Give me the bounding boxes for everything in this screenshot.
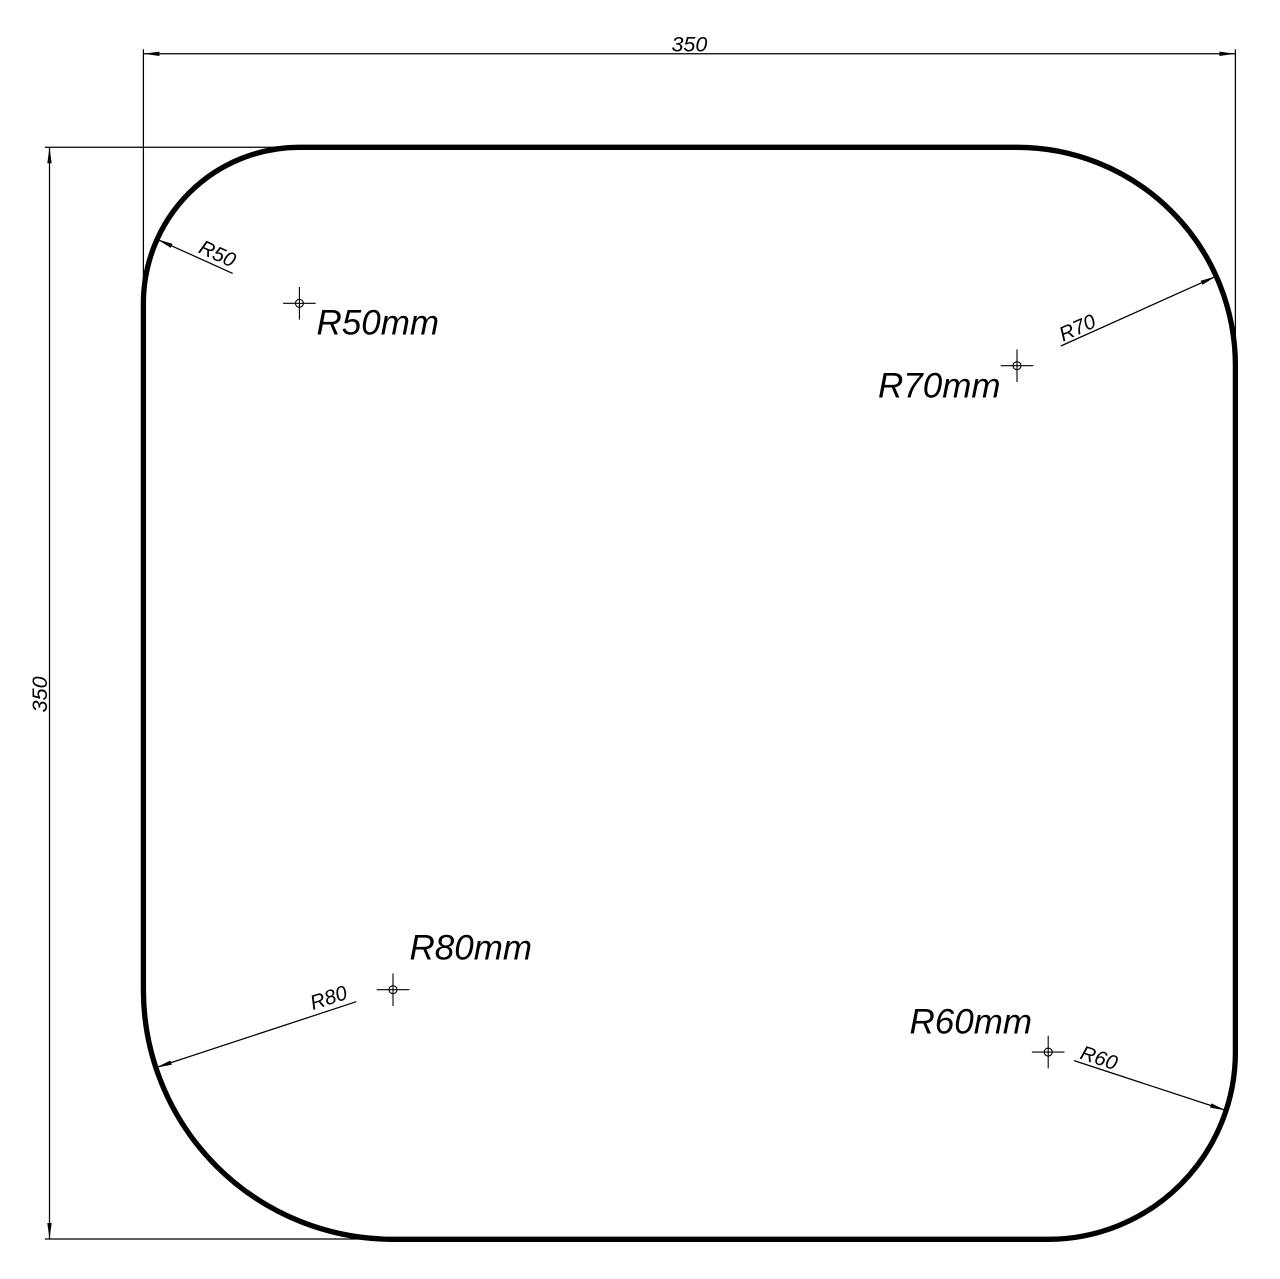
svg-text:R60mm: R60mm: [910, 1003, 1033, 1042]
svg-text:350: 350: [28, 676, 52, 712]
svg-text:R80mm: R80mm: [410, 929, 533, 968]
svg-text:350: 350: [671, 33, 707, 57]
svg-text:R70mm: R70mm: [878, 367, 1001, 406]
svg-text:R50mm: R50mm: [317, 304, 440, 343]
